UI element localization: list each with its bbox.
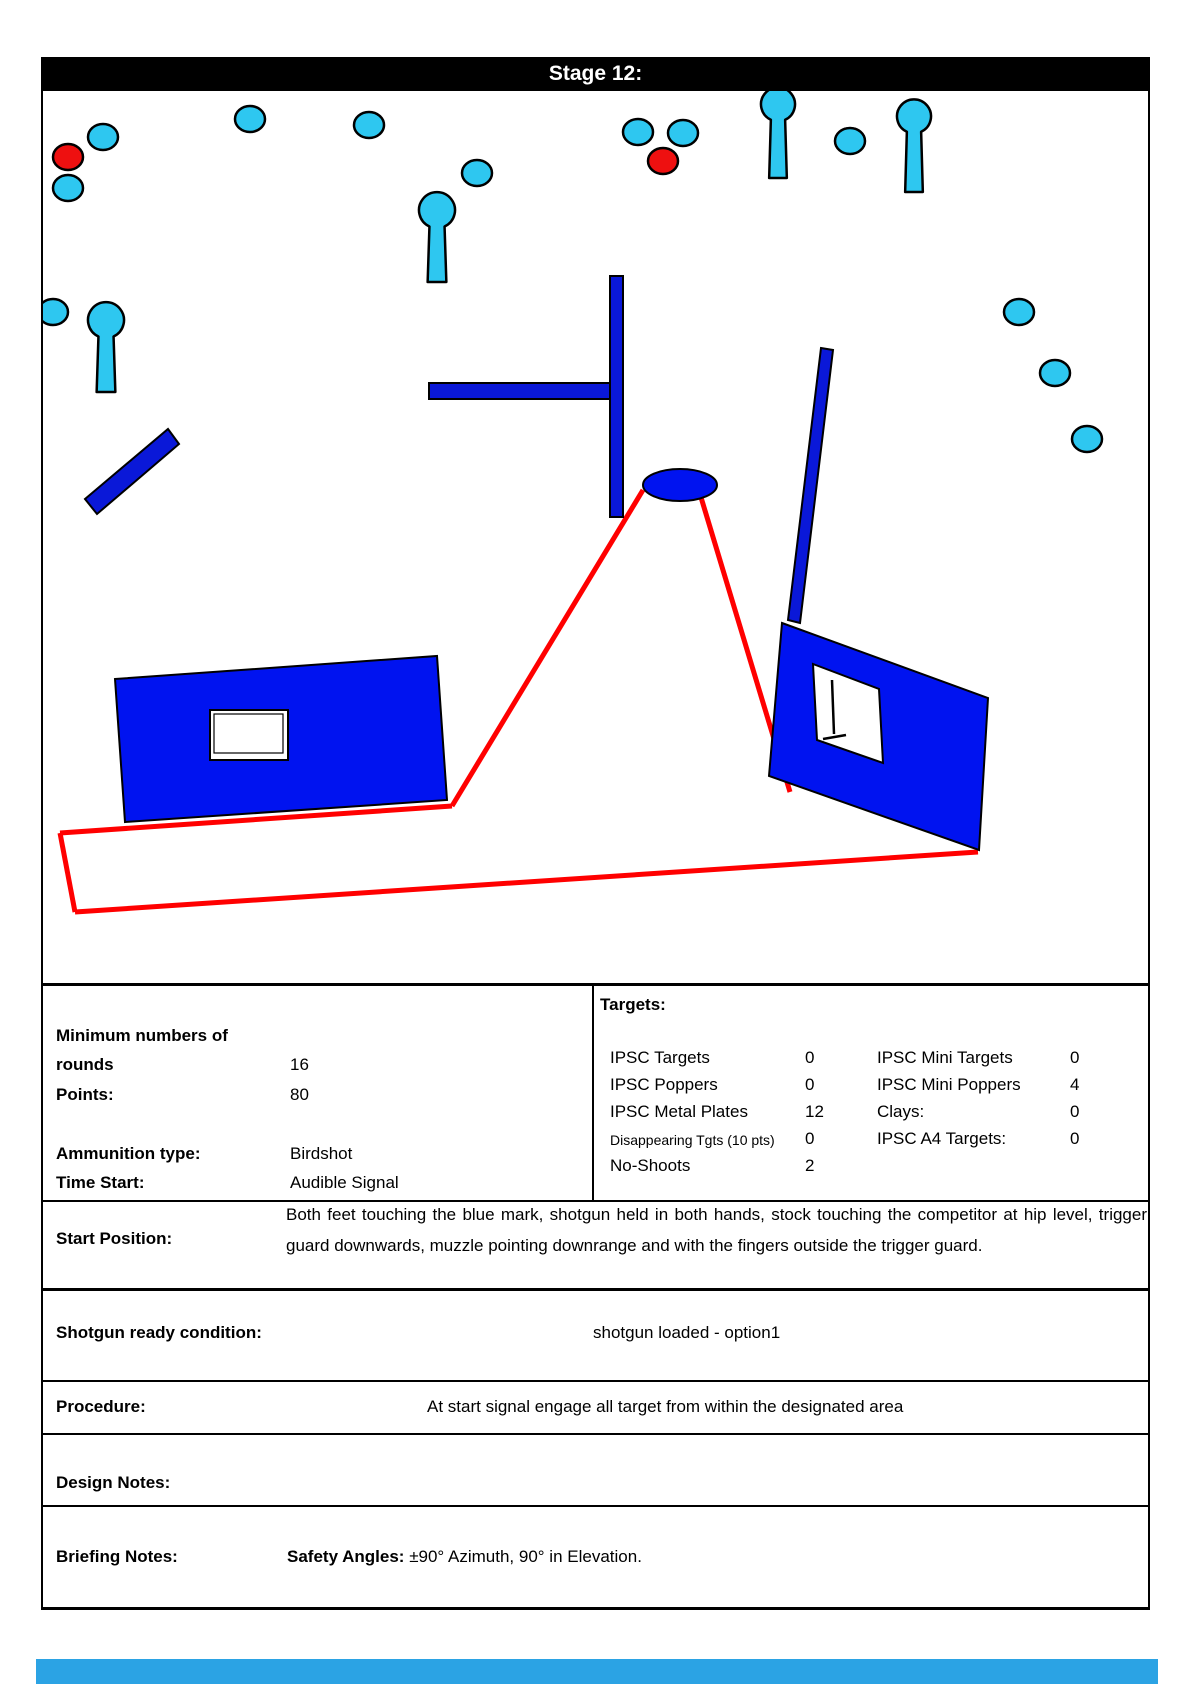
ready-condition-value: shotgun loaded - option1 [593, 1323, 780, 1343]
targets-title: Targets: [600, 995, 666, 1015]
wall-bar [85, 429, 179, 514]
metal-plate [354, 112, 384, 138]
points-value: 80 [290, 1085, 309, 1105]
target-count-value: 0 [805, 1129, 814, 1149]
fault-line [60, 833, 75, 912]
points-label: Points: [56, 1085, 114, 1105]
target-type-label: IPSC A4 Targets: [877, 1129, 1006, 1148]
ready-condition-label: Shotgun ready condition: [56, 1323, 262, 1343]
bottom-blue-strip [36, 1659, 1158, 1684]
target-count-value: 0 [1070, 1102, 1079, 1122]
target-type-label: No-Shoots [610, 1156, 690, 1175]
metal-plate [43, 299, 68, 325]
mini-popper [761, 91, 795, 178]
ammo-type-label: Ammunition type: [56, 1144, 201, 1164]
row-border-3 [41, 1380, 1150, 1382]
safety-angles-label: Safety Angles: [287, 1547, 404, 1566]
min-rounds-label-line2: rounds [56, 1055, 114, 1075]
target-count-row: IPSC A4 Targets:0 [877, 1129, 1006, 1156]
fault-line [452, 490, 643, 806]
ammo-type-value: Birdshot [290, 1144, 352, 1164]
metal-plate [623, 119, 653, 145]
mini-popper [897, 99, 931, 192]
briefing-notes-label: Briefing Notes: [56, 1547, 178, 1567]
target-count-row: IPSC Mini Poppers4 [877, 1075, 1021, 1102]
target-type-label: IPSC Poppers [610, 1075, 718, 1094]
time-start-label: Time Start: [56, 1173, 145, 1193]
min-rounds-label-line1: Minimum numbers of [56, 1026, 228, 1046]
target-count-value: 0 [805, 1075, 814, 1095]
metal-plate [53, 175, 83, 201]
metal-plate [1004, 299, 1034, 325]
diagram-bottom-border [41, 983, 1150, 986]
stage-diagram [43, 91, 1148, 985]
target-type-label: Clays: [877, 1102, 924, 1121]
target-count-value: 0 [805, 1048, 814, 1068]
target-count-value: 2 [805, 1156, 814, 1176]
target-count-row: Clays:0 [877, 1102, 924, 1129]
min-rounds-value: 16 [290, 1055, 309, 1075]
metal-plate [88, 124, 118, 150]
safety-angles-value: ±90° Azimuth, 90° in Elevation. [404, 1547, 641, 1566]
table-border-right [1148, 57, 1150, 1609]
target-count-value: 12 [805, 1102, 824, 1122]
wall-bar [429, 383, 611, 399]
cell-divider [592, 983, 594, 1202]
target-count-row: IPSC Poppers0 [610, 1075, 718, 1102]
target-count-row: IPSC Metal Plates12 [610, 1102, 748, 1129]
fault-line [75, 852, 978, 912]
metal-plate [1072, 426, 1102, 452]
mini-popper [419, 192, 455, 282]
metal-plate [1040, 360, 1070, 386]
start-position-mark [643, 469, 717, 501]
target-count-row: Disappearing Tgts (10 pts)0 [610, 1129, 775, 1159]
procedure-value: At start signal engage all target from w… [427, 1397, 903, 1417]
row-border-2 [41, 1288, 1150, 1291]
metal-plate [668, 120, 698, 146]
briefing-notes-text: Safety Angles: ±90° Azimuth, 90° in Elev… [287, 1547, 642, 1567]
row-border-5 [41, 1505, 1150, 1507]
mini-popper [88, 302, 124, 392]
target-count-row: No-Shoots2 [610, 1156, 690, 1183]
target-count-value: 0 [1070, 1129, 1079, 1149]
target-count-value: 0 [1070, 1048, 1079, 1068]
start-position-text: Both feet touching the blue mark, shotgu… [286, 1199, 1147, 1261]
target-count-value: 4 [1070, 1075, 1079, 1095]
wall-bar [610, 276, 623, 517]
no-shoot-plate [648, 148, 678, 174]
metal-plate [462, 160, 492, 186]
table-border-bottom [41, 1607, 1150, 1610]
start-position-label: Start Position: [56, 1229, 172, 1249]
stage-header-bar: Stage 12: [41, 57, 1150, 91]
no-shoot-plate [53, 144, 83, 170]
stage-title: Stage 12: [549, 62, 642, 86]
time-start-value: Audible Signal [290, 1173, 399, 1193]
target-type-label: IPSC Mini Poppers [877, 1075, 1021, 1094]
target-count-row: IPSC Mini Targets0 [877, 1048, 1013, 1075]
target-type-label: Disappearing Tgts (10 pts) [610, 1132, 775, 1148]
target-type-label: IPSC Metal Plates [610, 1102, 748, 1121]
row-border-4 [41, 1433, 1150, 1435]
wall-bar [788, 348, 833, 623]
procedure-label: Procedure: [56, 1397, 146, 1417]
wall-window-frame [214, 714, 283, 753]
metal-plate [835, 128, 865, 154]
design-notes-label: Design Notes: [56, 1473, 170, 1493]
target-type-label: IPSC Mini Targets [877, 1048, 1013, 1067]
target-type-label: IPSC Targets [610, 1048, 710, 1067]
table-border-left [41, 57, 43, 1609]
target-count-row: IPSC Targets0 [610, 1048, 710, 1075]
metal-plate [235, 106, 265, 132]
